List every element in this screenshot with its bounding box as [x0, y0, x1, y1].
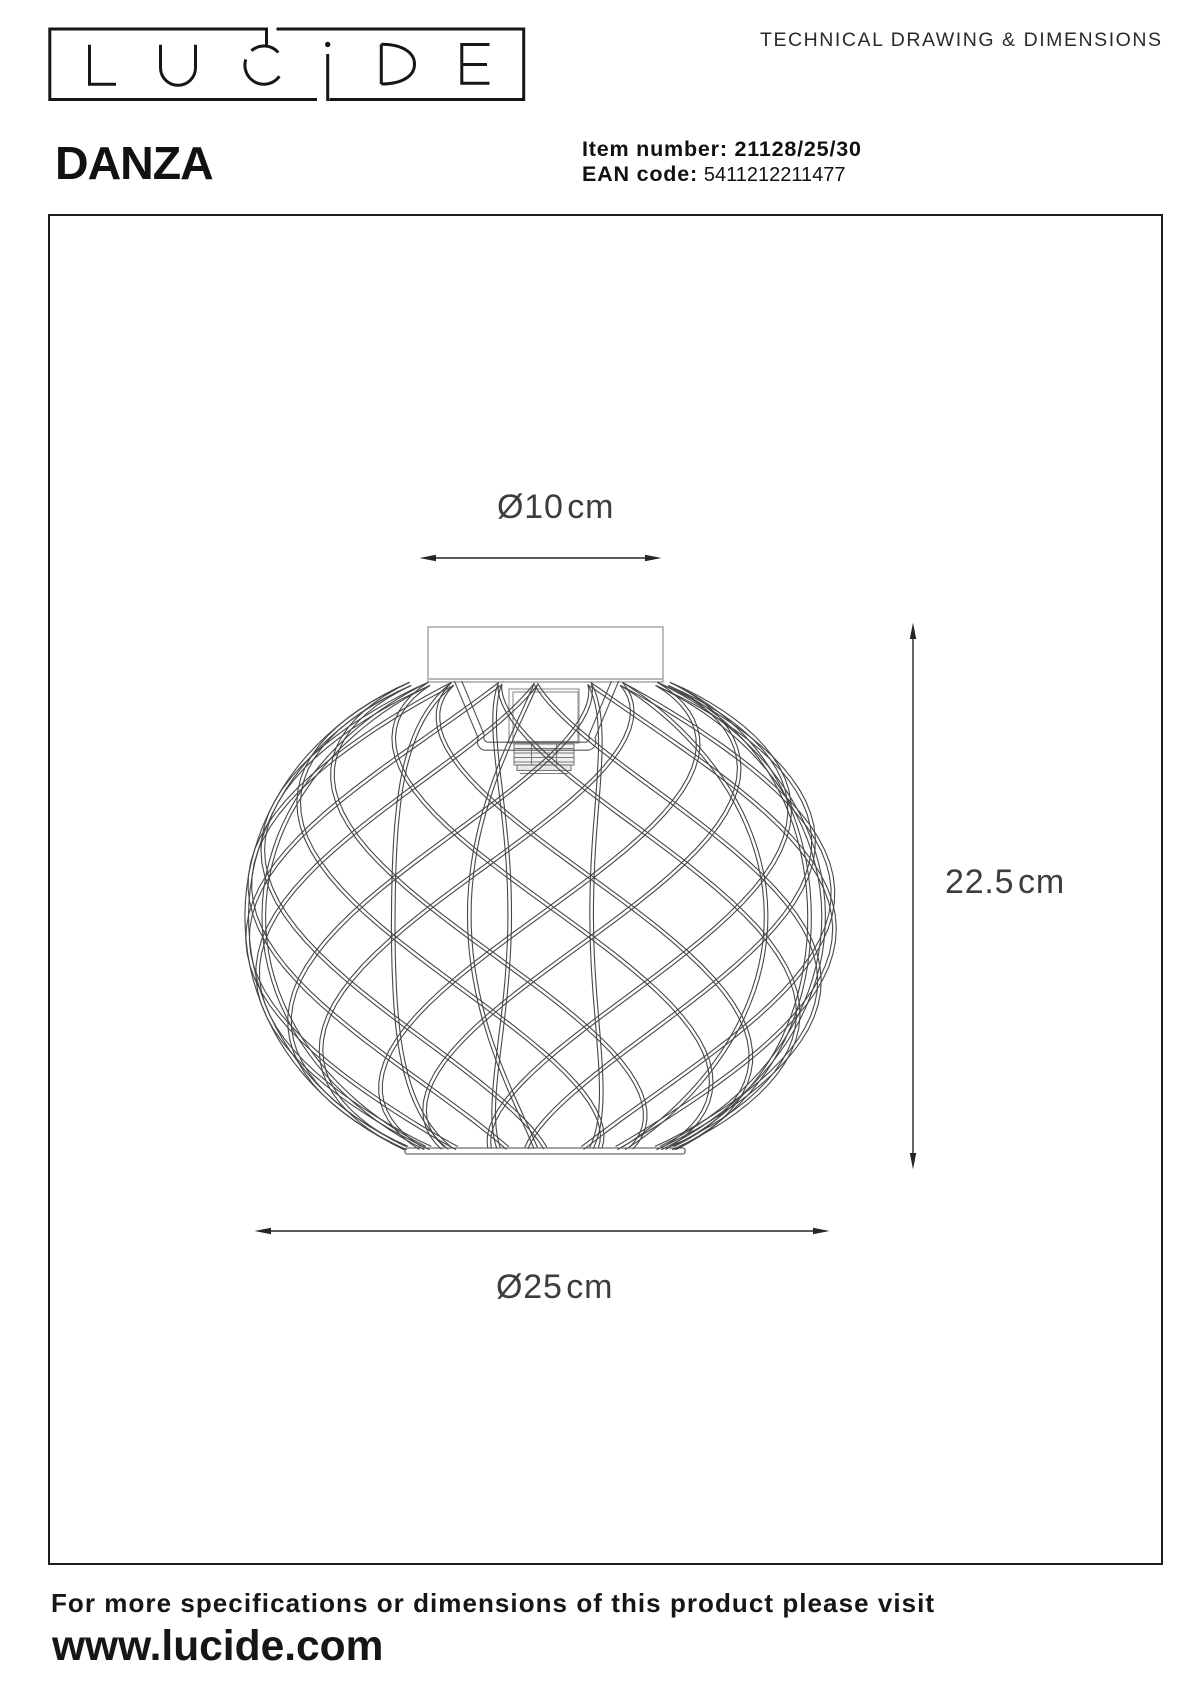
svg-text:22.5 cm: 22.5 cm: [945, 863, 1065, 901]
svg-text:Ø25 cm: Ø25 cm: [496, 1268, 613, 1306]
svg-text:Ø10 cm: Ø10 cm: [497, 488, 614, 526]
